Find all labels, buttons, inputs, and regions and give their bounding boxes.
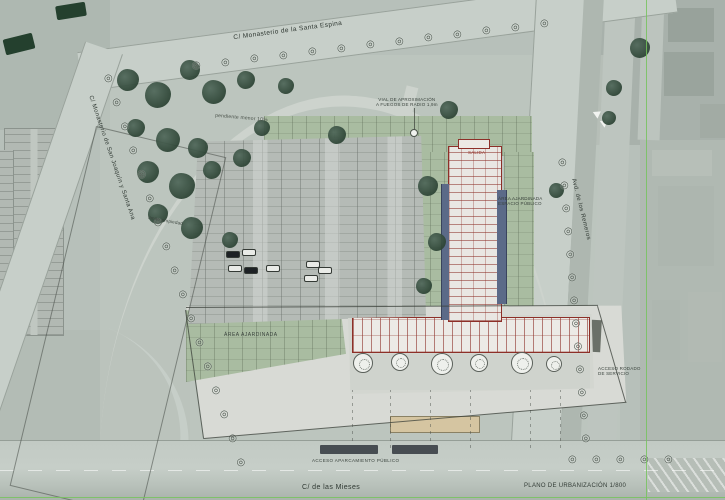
building-block [668,8,714,42]
car-icon [266,265,280,272]
car-icon [226,251,240,258]
street-tree-icon: ◎ [179,290,188,300]
service-access-line2: DE SERVICIO [598,371,641,376]
tree-icon [181,217,203,239]
survey-line-horizontal [0,497,725,498]
property-limit-label: límite propiedad [148,215,184,226]
building-block [658,186,714,266]
slope-label: pendiente menor 10% [215,114,268,124]
building-block [664,52,714,96]
street-tree-icon: ◎ [112,98,121,108]
car-icon [242,249,256,256]
tree-icon [127,119,145,137]
street-tree-icon: ◎ [162,242,171,252]
building-block [652,300,680,360]
street-tree-icon: ◎ [145,194,154,204]
tree-icon [202,80,226,104]
street-tree-icon: ◎ [121,122,130,132]
fire-approach-label: VIAL DE APROXIMACIÓN A FUEGOS DE RADIO 1… [376,97,438,107]
surface-parking-lot [186,132,426,324]
plaza-guide-line [470,390,471,448]
tree-icon [222,232,238,248]
street-bottom-lane-marks [0,470,725,471]
building-block [652,150,712,176]
landscaped-wedge [186,308,346,382]
canopy-beige [390,416,480,433]
tree-icon [188,138,208,158]
plaza-guide-line [430,390,431,448]
street-tree-icon: ◎ [228,434,237,444]
plan-title: PLANO DE URBANIZACIÓN 1/800 [524,483,626,489]
garden-public-label: ÁREA AJARDINADA ESPACIO PÚBLICO [498,196,543,206]
car-icon [304,275,318,282]
tree-icon [145,82,171,108]
street-tree-icon: ◎ [572,319,581,329]
street-tree-icon: ◎ [220,410,229,420]
hatched-area [648,458,725,492]
landscaped-area-north [264,116,532,156]
fire-approach-line2: A FUEGOS DE RADIO 1,9m [376,102,438,107]
car-icon [306,261,320,268]
tree-icon [237,71,255,89]
car-icon [244,267,258,274]
tree-icon [137,161,159,183]
car-icon [318,267,332,274]
parking-access-bar [392,445,438,454]
street-tree-icon: ◎ [137,170,146,180]
exit-label: SALIDA [468,150,485,155]
parking-access-bar [320,445,378,454]
plaza-edge-line [204,402,627,439]
street-top [77,0,677,92]
courtyard-circle [470,354,488,372]
yield-mark-icon [591,108,601,118]
landscaped-strip-east [504,152,534,310]
parking-access-label: ACCESO APARCAMIENTO PÚBLICO [312,458,399,463]
tree-icon [233,149,251,167]
building-wing-vertical [448,146,502,322]
street-tree-icon: ◎ [236,458,245,468]
hedge-block [3,33,36,56]
street-tree-icon: ◎ [212,386,221,396]
garden-area-label: ÁREA AJARDINADA [224,333,278,339]
street-label-bottom: C/ de las Mieses [302,484,360,491]
tree-icon [169,173,195,199]
street-right-service-road [586,0,636,465]
street-tree-icon: ◎ [640,455,649,465]
tree-icon [203,161,221,179]
street-tree-icon: ◎ [664,455,673,465]
courtyard-circle [391,353,409,371]
street-tree-icon: ◎ [170,266,179,276]
street-tree-icon: ◎ [574,342,583,352]
hedge-block [55,2,87,21]
car-icon [228,265,242,272]
landscaped-strip-west [416,152,452,314]
street-tree-icon: ◎ [576,365,585,375]
street-tree-icon: ◎ [578,388,587,398]
street-label-left: C/ Monasterio de San Joaquín y Santa Ana [87,95,135,221]
courtyard-circle [353,353,373,373]
courtyard-circle [431,353,453,375]
plaza-guide-line [390,390,391,448]
building-block [700,104,725,138]
service-access-label: ACCESO RODADO DE SERVICIO [598,366,641,376]
street-tree-icon: ◎ [616,455,625,465]
tree-icon [278,78,294,94]
urbanization-plan-canvas: ◎◎◎◎◎◎◎◎◎◎◎◎◎◎◎◎◎◎◎◎◎◎◎◎◎◎◎◎◎◎◎◎◎◎◎◎◎◎◎◎… [0,0,725,500]
plaza-guide-line [352,390,353,448]
street-tree-icon: ◎ [570,296,579,306]
garden-public-line2: ESPACIO PÚBLICO [498,201,543,206]
building-block [688,292,722,362]
street-tree-icon: ◎ [129,146,138,156]
aerial-patch [0,330,190,500]
building-block [638,0,665,140]
street-tree-icon: ◎ [568,455,577,465]
tree-icon [156,128,180,152]
